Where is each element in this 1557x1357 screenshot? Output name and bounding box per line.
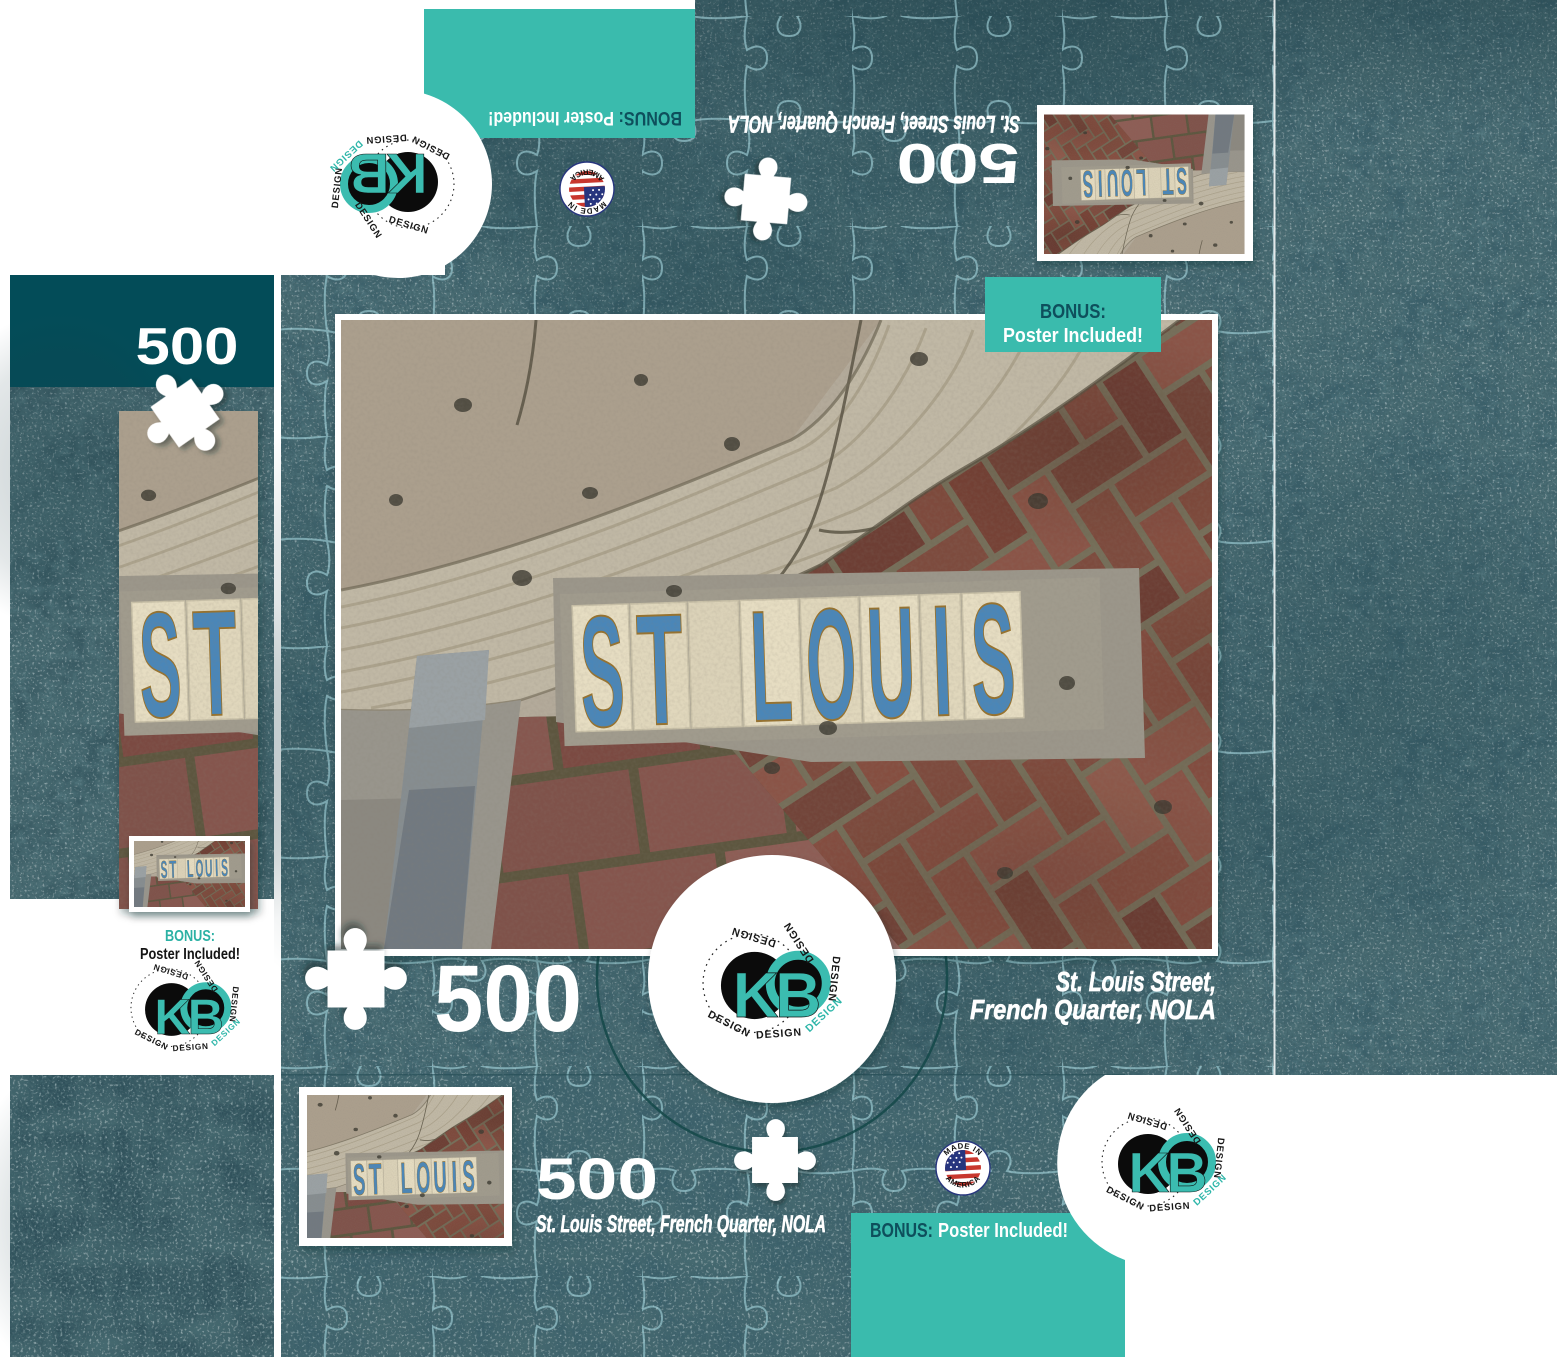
svg-text:Poster Included!: Poster Included! [140, 946, 240, 963]
svg-text:BONUS:: BONUS: [870, 1220, 933, 1242]
svg-text:St. Louis Street,: St. Louis Street, [1056, 966, 1216, 997]
svg-text:St. Louis Street, French Quart: St. Louis Street, French Quarter, NOLA [728, 110, 1020, 137]
svg-text:500: 500 [434, 946, 582, 1052]
svg-text:500: 500 [536, 1147, 658, 1212]
svg-text:BONUS: Poster Included!: BONUS: Poster Included! [488, 107, 682, 128]
svg-text:St. Louis Street, French Quart: St. Louis Street, French Quarter, NOLA [536, 1211, 826, 1238]
svg-text:500: 500 [897, 131, 1020, 195]
svg-text:Poster Included!: Poster Included! [938, 1220, 1068, 1242]
svg-text:500: 500 [136, 318, 239, 376]
svg-text:BONUS:: BONUS: [165, 928, 215, 945]
svg-text:BONUS:: BONUS: [1040, 301, 1106, 323]
svg-text:French Quarter, NOLA: French Quarter, NOLA [970, 994, 1216, 1025]
svg-text:Poster Included!: Poster Included! [1003, 325, 1143, 347]
